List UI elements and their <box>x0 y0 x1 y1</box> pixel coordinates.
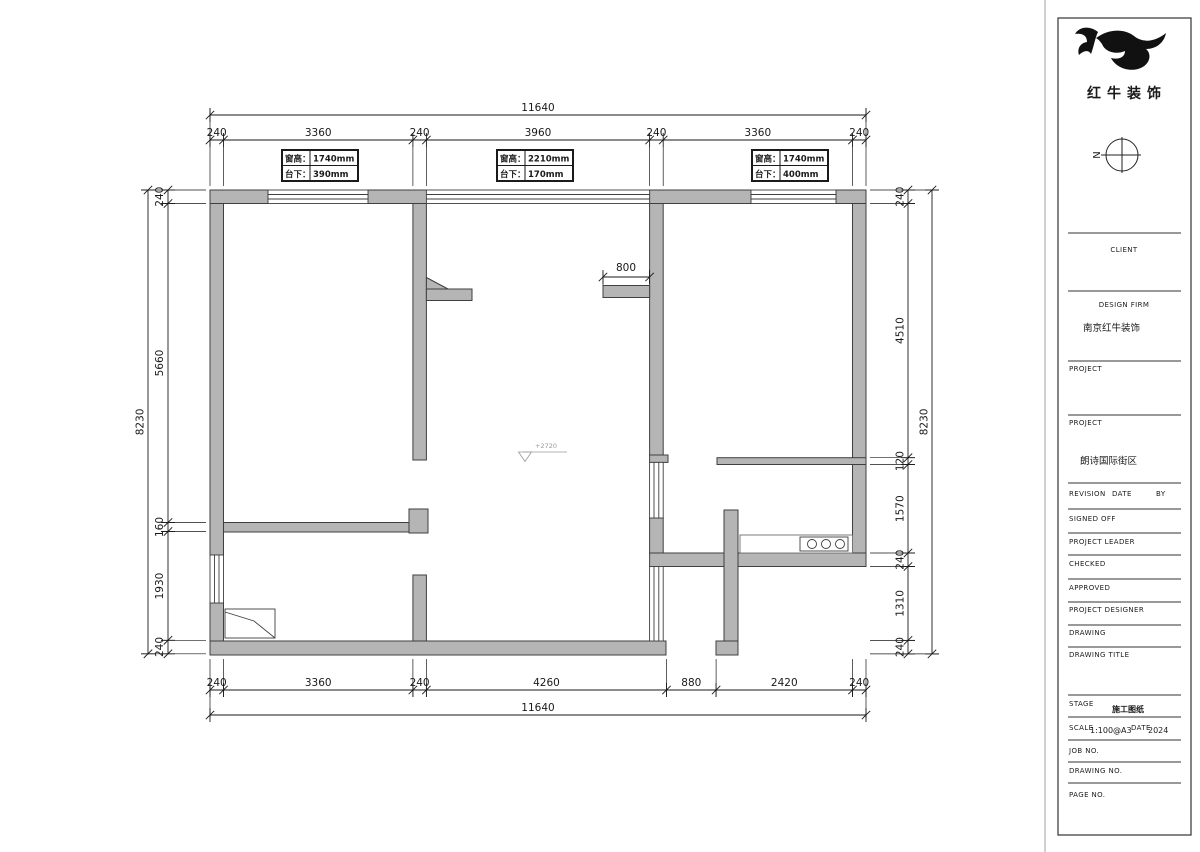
floor-plan-canvas: +2720 11640 240 3360 <box>0 0 1200 852</box>
entry-door <box>225 609 275 638</box>
dim-value: 800 <box>616 262 636 274</box>
wall-segment <box>650 518 664 553</box>
signed-off-label: SIGNED OFF <box>1069 515 1116 523</box>
dim-value: 11640 <box>521 102 554 114</box>
wall-segment <box>650 553 866 567</box>
wall-segment <box>650 190 751 204</box>
dim-value: 240 <box>646 127 666 139</box>
window-tag: 窗高： 1740mm 台下： 390mm <box>282 150 358 181</box>
dim-value: 11640 <box>521 702 554 714</box>
tag-label: 窗高： <box>755 154 781 165</box>
walls <box>210 190 866 655</box>
dim-value: 240 <box>207 677 227 689</box>
wall-segment <box>724 510 738 641</box>
date-label: DATE <box>1112 490 1132 498</box>
dim-value: 240 <box>895 550 907 570</box>
tag-value: 400mm <box>783 170 819 180</box>
dim-value: 8230 <box>919 409 931 436</box>
window-tag-boxes: 窗高： 1740mm 台下： 390mm 窗高： 2210mm 台下： 170m… <box>282 150 828 181</box>
tag-label: 台下： <box>285 169 311 180</box>
drawing-sheet: +2720 11640 240 3360 <box>0 0 1200 852</box>
wall-segment <box>836 190 866 204</box>
project-label: PROJECT <box>1069 419 1102 427</box>
window <box>650 462 664 518</box>
dim-value: 240 <box>895 187 907 207</box>
tag-label: 台下： <box>500 169 526 180</box>
tag-value: 2210mm <box>528 155 570 165</box>
window <box>426 190 649 204</box>
drawing-no-label: DRAWING NO. <box>1069 767 1122 775</box>
drawing-label: DRAWING <box>1069 629 1106 637</box>
door-leaf <box>225 609 275 638</box>
project-value: 朗诗国际街区 <box>1080 455 1138 467</box>
job-no-label: JOB NO. <box>1068 747 1099 755</box>
window <box>268 190 368 204</box>
window <box>210 555 224 603</box>
project-label: PROJECT <box>1069 365 1102 373</box>
wall-segment <box>210 641 666 655</box>
wall-segment <box>853 204 867 567</box>
company-name: 红牛装饰 <box>1087 85 1167 102</box>
dim-value: 240 <box>154 637 166 657</box>
dim-value: 3360 <box>305 127 332 139</box>
dim-value: 880 <box>681 677 701 689</box>
tag-value: 170mm <box>528 170 564 180</box>
revision-label: REVISION <box>1069 490 1106 498</box>
kitchen-counter <box>740 535 853 553</box>
bull-logo <box>1075 28 1166 70</box>
wall-segment <box>603 286 650 298</box>
dim-value: 3360 <box>744 127 771 139</box>
dim-value: 160 <box>154 517 166 537</box>
wall-chamfer <box>426 278 448 290</box>
dim-value: 240 <box>849 127 869 139</box>
scale-value: 1:100@A3 <box>1090 726 1132 735</box>
title-block: 红牛装饰 N CLIENT <box>1045 0 1191 852</box>
by-label: BY <box>1156 490 1166 498</box>
tag-label: 窗高： <box>285 154 311 165</box>
burner-icon <box>808 540 817 549</box>
tag-value: 390mm <box>313 170 349 180</box>
dim-value: 3360 <box>305 677 332 689</box>
project-designer-label: PROJECT DESIGNER <box>1069 606 1144 614</box>
tag-value: 1740mm <box>313 155 355 165</box>
window <box>751 190 836 204</box>
wall-segment <box>716 641 738 655</box>
wall-segment <box>368 190 427 204</box>
dim-value: 4510 <box>895 317 907 344</box>
wall-segment <box>210 204 224 556</box>
dim-value: 5660 <box>154 350 166 377</box>
level-triangle-icon <box>519 452 532 462</box>
dim-value: 4260 <box>533 677 560 689</box>
dim-value: 240 <box>410 127 430 139</box>
stage-label: STAGE <box>1069 700 1094 708</box>
drawing-title-label: DRAWING TITLE <box>1069 651 1129 659</box>
wall-segment <box>717 458 866 465</box>
dim-value: 240 <box>207 127 227 139</box>
window-tag: 窗高： 1740mm 台下： 400mm <box>752 150 828 181</box>
stage-value: 施工图纸 <box>1112 704 1144 714</box>
dim-value: 1930 <box>154 573 166 600</box>
page-no-label: PAGE NO. <box>1069 791 1105 799</box>
tag-value: 1740mm <box>783 155 825 165</box>
windows <box>210 190 836 641</box>
client-label: CLIENT <box>1110 246 1138 254</box>
north-label: N <box>1092 151 1103 158</box>
dim-value: 3960 <box>525 127 552 139</box>
dim-value: 2420 <box>771 677 798 689</box>
dim-value: 240 <box>895 637 907 657</box>
tag-label: 窗高： <box>500 154 526 165</box>
wall-segment <box>224 523 410 533</box>
dim-value: 1310 <box>895 590 907 617</box>
burner-icon <box>836 540 845 549</box>
window-tag: 窗高： 2210mm 台下： 170mm <box>497 150 573 181</box>
wall-segment <box>210 603 224 641</box>
wall-segment <box>413 575 427 641</box>
dim-value: 240 <box>410 677 430 689</box>
dim-value: 8230 <box>135 409 147 436</box>
wall-segment <box>409 509 428 533</box>
burner-icon <box>822 540 831 549</box>
dim-value: 240 <box>154 187 166 207</box>
dim-value: 240 <box>849 677 869 689</box>
wall-segment <box>650 204 664 456</box>
wall-segment <box>413 204 427 461</box>
date-value: 2024 <box>1148 726 1168 735</box>
wall-segment <box>426 289 472 301</box>
checked-label: CHECKED <box>1069 560 1106 568</box>
project-leader-label: PROJECT LEADER <box>1069 538 1135 546</box>
design-firm-label: DESIGN FIRM <box>1099 301 1150 309</box>
level-marker <box>519 452 568 462</box>
wall-segment <box>650 455 668 462</box>
dim-value: 120 <box>895 451 907 471</box>
window <box>650 567 664 642</box>
north-compass-icon <box>1101 137 1141 173</box>
tag-label: 台下： <box>755 169 781 180</box>
approved-label: APPROVED <box>1069 584 1110 592</box>
design-firm-value: 南京红牛装饰 <box>1083 322 1140 334</box>
level-value: +2720 <box>535 442 557 450</box>
wall-segment <box>210 190 268 204</box>
dim-value: 1570 <box>895 495 907 522</box>
